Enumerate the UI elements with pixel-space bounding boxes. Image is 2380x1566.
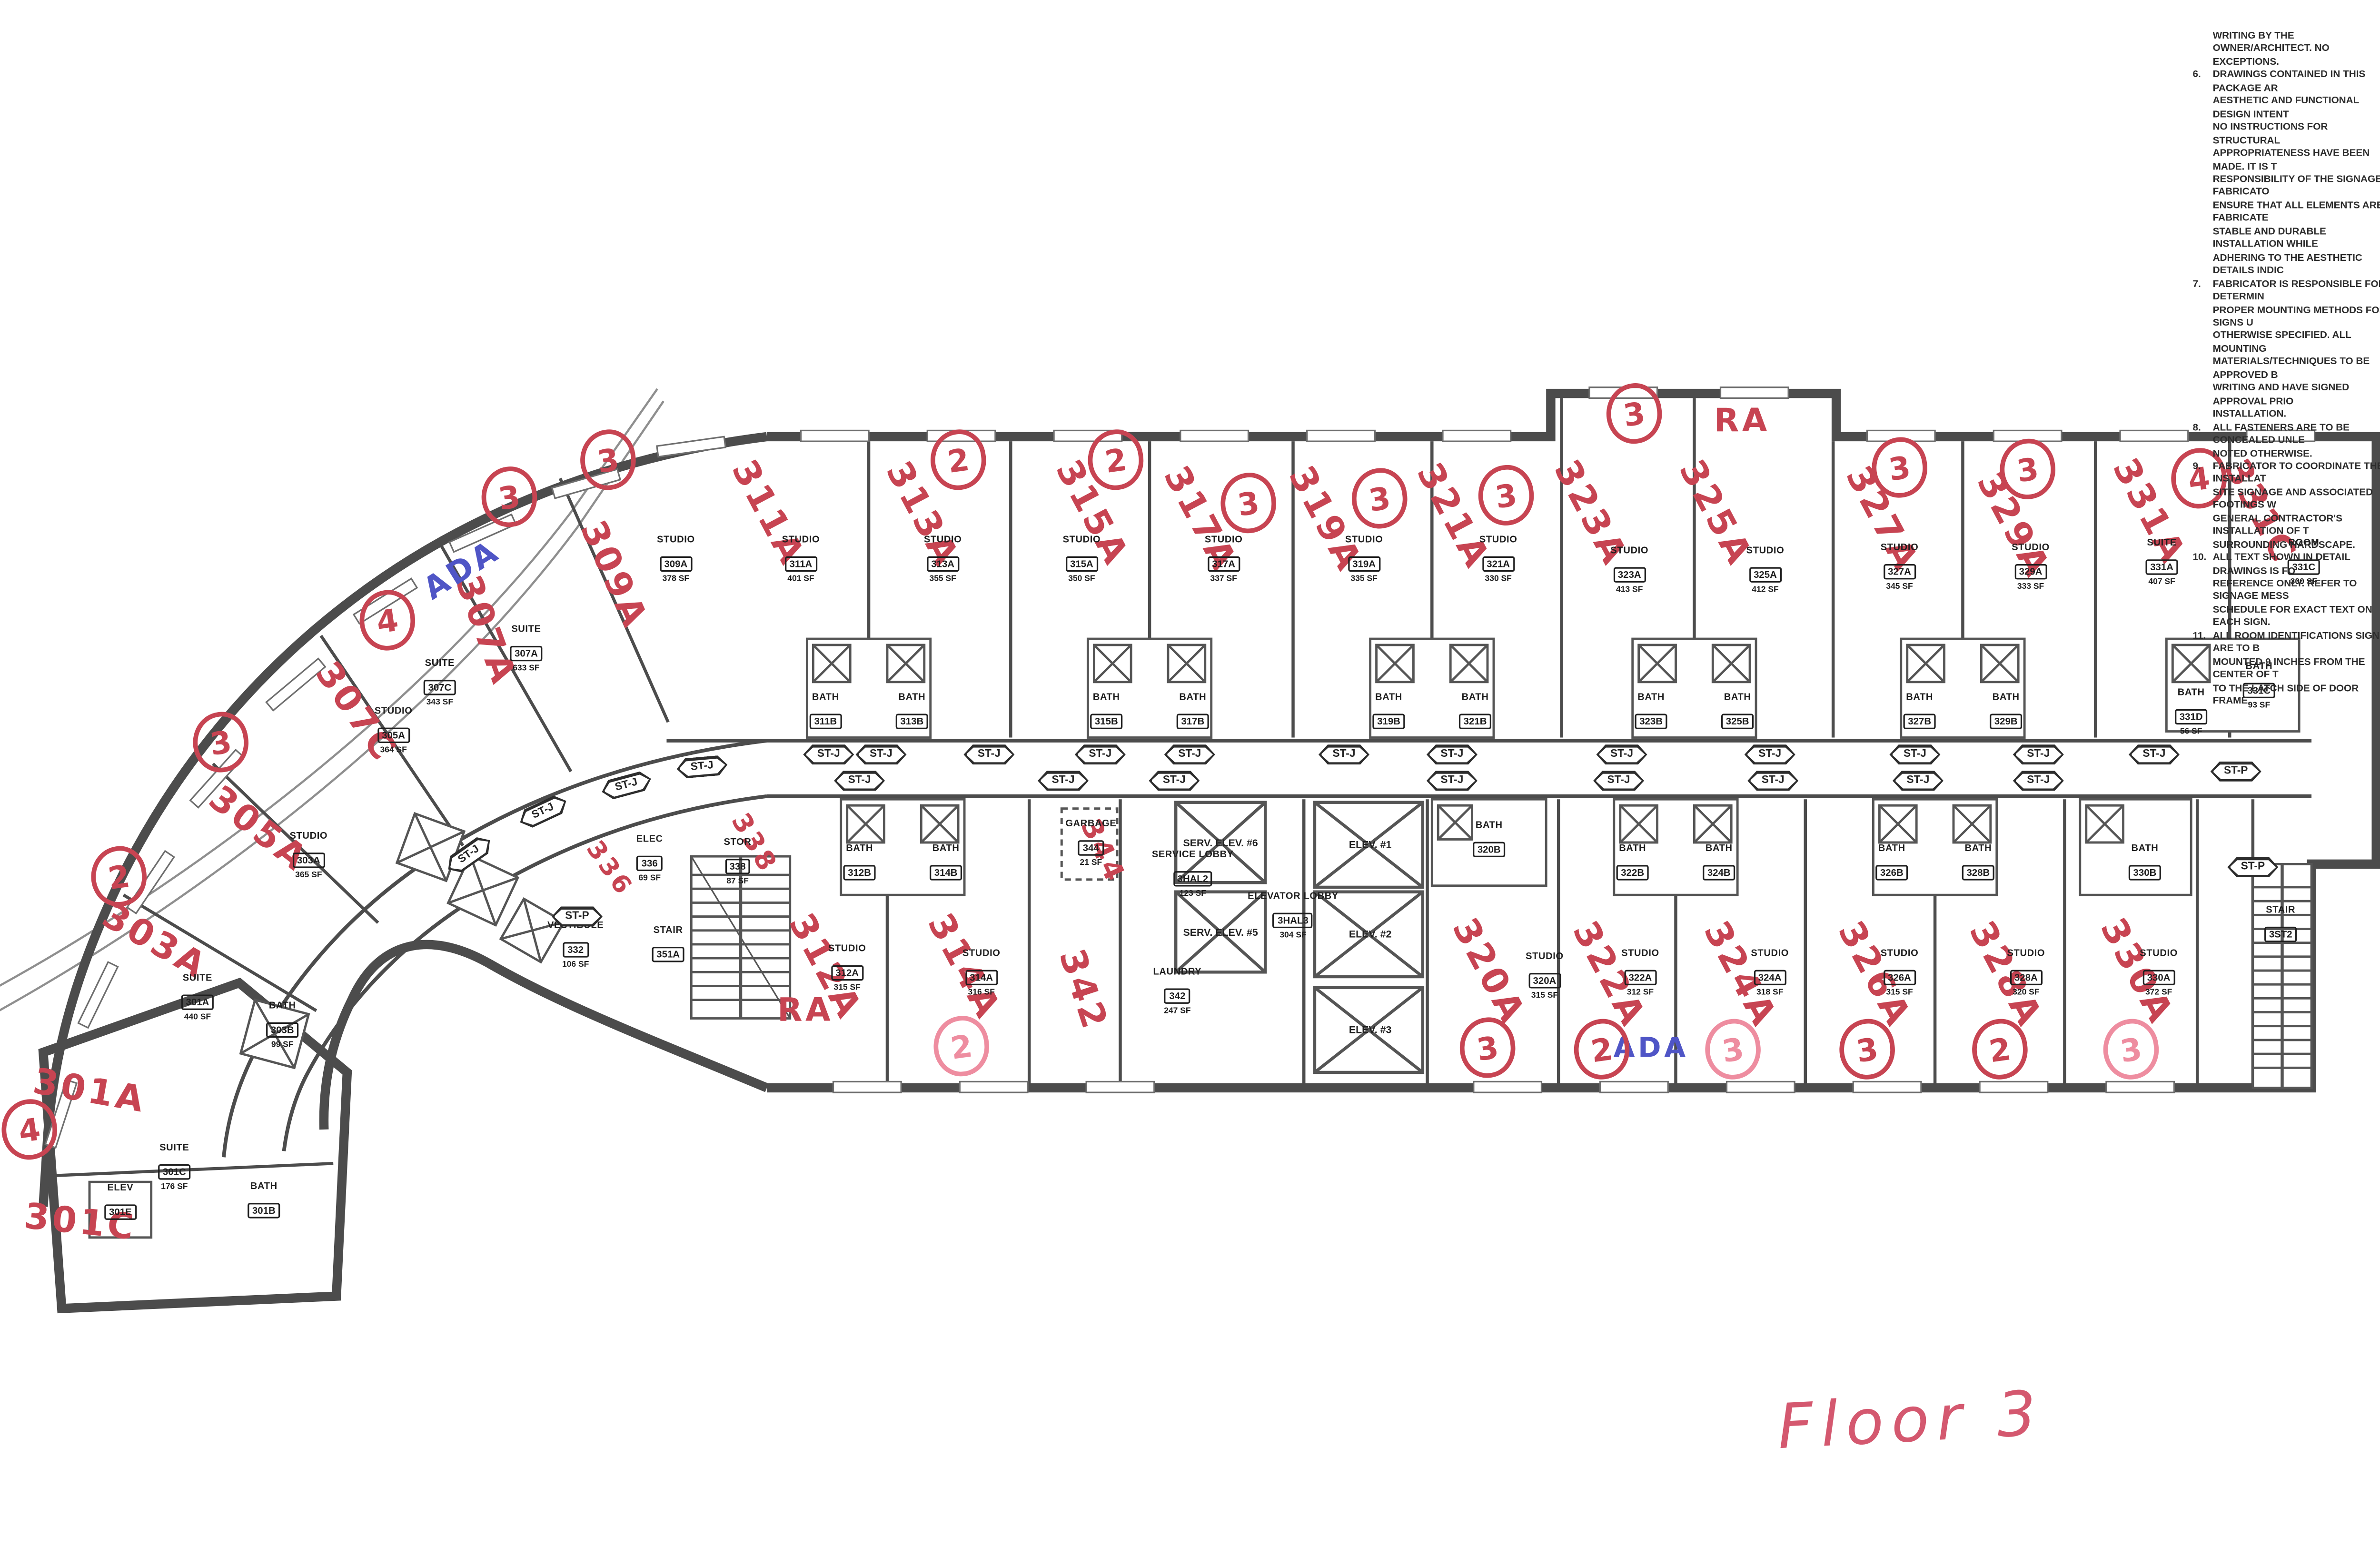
badge-text: ST-J — [1904, 749, 1926, 760]
room-tag: BATH303B99 SF — [266, 1002, 298, 1050]
room-tag: STUDIO326A315 SF — [1881, 950, 1919, 997]
room-area: 315 SF — [1526, 991, 1564, 1001]
keynote-badge: ST-P — [2211, 762, 2261, 782]
room-type: STUDIO — [1610, 547, 1648, 557]
room-type: STAIR — [652, 927, 684, 937]
room-number: 319A — [1348, 557, 1380, 573]
room-number: 307A — [510, 646, 542, 662]
room-number: 314A — [965, 971, 998, 986]
room-area: 372 SF — [2140, 988, 2178, 998]
room-number: 317B — [1177, 714, 1209, 730]
room-area: 365 SF — [290, 871, 328, 881]
room-tag: BATH323B — [1635, 694, 1667, 732]
badge-text: ST-J — [1163, 775, 1186, 786]
room-number: 313B — [896, 714, 928, 730]
room-tag: BATH313B — [896, 694, 928, 732]
room-tag: SUITE307A633 SF — [510, 626, 542, 674]
room-number: 307C — [424, 681, 456, 696]
room-number: 312B — [843, 866, 875, 882]
room-type: BATH — [1904, 694, 1936, 704]
room-tag: BATH330B — [2129, 845, 2161, 883]
room-number: 344 — [1078, 841, 1104, 857]
room-number: 322A — [1624, 971, 1656, 986]
room-tag: SERVICE LOBBY3HAL2123 SF — [1152, 851, 1234, 899]
room-area: 69 SF — [636, 874, 663, 883]
room-area: 316 SF — [962, 988, 1001, 998]
room-type: STUDIO — [1881, 544, 1919, 555]
room-number: 315B — [1090, 714, 1122, 730]
room-type: BATH — [1875, 845, 1908, 855]
badge-text: ST-J — [1178, 749, 1201, 760]
room-tag: STUDIO325A412 SF — [1746, 547, 1785, 595]
room-type: BATH — [1721, 694, 1754, 704]
room-tag: BATH328B — [1962, 845, 1994, 883]
note-number: 7. — [2192, 278, 2212, 422]
room-area: 413 SF — [1610, 585, 1648, 595]
badge-text: ST-J — [848, 775, 871, 786]
floor-title-handwritten: Floor 3 — [1776, 1378, 2046, 1463]
room-tag: SUITE331A407 SF — [2145, 539, 2178, 587]
room-type: STUDIO — [1621, 950, 1659, 960]
keynote-badge: ST-P — [2227, 857, 2278, 877]
room-area: 355 SF — [924, 575, 962, 584]
keynote-badge: ST-J — [1164, 744, 1215, 764]
keynote-badge: ST-J — [834, 771, 885, 791]
room-area: 312 SF — [1621, 988, 1659, 998]
room-type: ELEC — [636, 836, 663, 846]
room-number: 309A — [660, 557, 692, 573]
room-type: BATH — [810, 694, 842, 704]
badge-text: ST-J — [1089, 749, 1111, 760]
room-number: 323A — [1613, 568, 1646, 584]
room-tag: BATH324B — [1703, 845, 1735, 883]
room-type: SUITE — [158, 1144, 190, 1155]
room-number: 320B — [1473, 842, 1505, 858]
keynote-badge: ST-J — [1747, 771, 1798, 791]
room-tag: SUITE301C176 SF — [158, 1144, 190, 1192]
room-type: STUDIO — [962, 950, 1001, 960]
room-number: 3ST2 — [2264, 927, 2297, 943]
room-type: STUDIO — [290, 833, 328, 843]
room-type: LAUNDRY — [1153, 968, 1201, 979]
room-tag: STUDIO315A350 SF — [1063, 536, 1101, 584]
room-tag: BATH320B — [1473, 822, 1505, 860]
room-area: 318 SF — [1751, 988, 1789, 998]
room-type: SERVICE LOBBY — [1152, 851, 1234, 862]
room-area: 633 SF — [510, 664, 542, 674]
room-number: 324B — [1703, 866, 1735, 882]
badge-text: ST-J — [690, 761, 714, 773]
room-type: BATH — [1473, 822, 1505, 832]
room-number: 303B — [266, 1023, 298, 1039]
badge-text: ST-J — [2142, 749, 2165, 760]
badge-text: ST-J — [1440, 749, 1463, 760]
room-type: STUDIO — [1881, 950, 1919, 960]
room-number: 325A — [1749, 568, 1781, 584]
keynote-badge: ST-J — [963, 744, 1014, 764]
room-tag: STUDIO309A378 SF — [657, 536, 695, 584]
badge-text: ST-J — [1440, 775, 1463, 786]
room-type: BATH — [2129, 845, 2161, 855]
room-tag: STUDIO329A333 SF — [2012, 544, 2050, 592]
note-text: ALL FASTENERS ARE TO BE CONCEALED UNLE N… — [2213, 422, 2380, 461]
room-number: 311A — [785, 557, 817, 573]
room-area: 401 SF — [782, 575, 820, 584]
badge-text: ST-J — [870, 749, 892, 760]
room-type: STUDIO — [1751, 950, 1789, 960]
keynote-badge: ST-J — [1593, 771, 1644, 791]
room-tag: STUDIO327A345 SF — [1881, 544, 1919, 592]
room-tag: BATH312B — [843, 845, 875, 883]
scanned-floorplan-sheet: 311A313A315A317A319A321A323A325A327A329A… — [0, 0, 2380, 1566]
elevator-label: ELEV. #1 — [1349, 840, 1392, 851]
note-number: 6. — [2192, 70, 2212, 278]
room-tag: BATH301B — [248, 1183, 280, 1221]
room-tag: SUITE301A440 SF — [181, 974, 214, 1022]
keynote-badge: ST-J — [1075, 744, 1126, 764]
room-type: STUDIO — [1526, 953, 1564, 963]
note-text: FABRICATOR IS RESPONSIBLE FOR DETERMIN P… — [2213, 278, 2380, 422]
keynote-badge: ST-J — [1427, 771, 1478, 791]
room-area: 176 SF — [158, 1182, 190, 1192]
room-type: STUDIO — [1063, 536, 1101, 547]
note-item: 9.FABRICATOR TO COORDINATE THE INSTALLAT… — [2192, 461, 2380, 553]
note-item: 6.DRAWINGS CONTAINED IN THIS PACKAGE AR … — [2192, 70, 2380, 278]
room-area: 378 SF — [657, 575, 695, 584]
handwritten-label: RA — [1714, 405, 1770, 437]
room-type: STUDIO — [2007, 950, 2045, 960]
notes-intro: WRITING BY THE OWNER/ARCHITECT. NO EXCEP… — [2213, 31, 2380, 70]
keynote-badge: ST-J — [1745, 744, 1795, 764]
room-tag: BATH329B — [1990, 694, 2022, 732]
room-tag: STUDIO330A372 SF — [2140, 950, 2178, 997]
room-type: BATH — [1459, 694, 1491, 704]
room-tag: BATH326B — [1875, 845, 1908, 883]
room-type: BATH — [1372, 694, 1405, 704]
room-type: GARBAGE — [1065, 820, 1116, 831]
room-tag: STOR33887 SF — [724, 839, 752, 886]
room-tag: ELEC33669 SF — [636, 836, 663, 883]
note-text: ALL ROOM IDENTIFICATIONS SIGNS ARE TO B … — [2213, 631, 2380, 709]
room-tag: GARBAGE34421 SF — [1065, 820, 1116, 868]
room-area: 412 SF — [1746, 585, 1785, 595]
stair-right — [2253, 864, 2311, 1088]
badge-text: ST-J — [1906, 775, 1929, 786]
room-area: 315 SF — [828, 983, 866, 993]
keynote-badge: ST-J — [1038, 771, 1089, 791]
room-tag: STUDIO324A318 SF — [1751, 950, 1789, 997]
room-tag: STUDIO321A330 SF — [1479, 536, 1517, 584]
room-tag: BATH319B — [1372, 694, 1405, 732]
note-text: FABRICATOR TO COORDINATE THE INSTALLAT S… — [2213, 461, 2380, 553]
room-area: 315 SF — [1881, 988, 1919, 998]
room-tag: STUDIO313A355 SF — [924, 536, 962, 584]
room-area: 247 SF — [1153, 1007, 1201, 1016]
room-number: 329A — [2014, 565, 2047, 580]
keynote-badge: ST-J — [1889, 744, 1940, 764]
badge-text: ST-J — [1762, 775, 1785, 786]
badge-text: ST-J — [2027, 749, 2050, 760]
badge-text: ST-J — [2027, 775, 2050, 786]
room-area: 304 SF — [1248, 931, 1339, 941]
room-tag: STUDIO305A364 SF — [375, 707, 413, 755]
room-type: BATH — [1616, 845, 1649, 855]
note-item: 11.ALL ROOM IDENTIFICATIONS SIGNS ARE TO… — [2192, 631, 2380, 709]
room-tag: STUDIO312A315 SF — [828, 945, 866, 993]
room-number: 314B — [930, 866, 962, 882]
keynote-badge: ST-J — [803, 744, 854, 764]
badge-text: ST-J — [1052, 775, 1075, 786]
note-text: ALL TEXT SHOWN IN DETAIL DRAWINGS IS FO … — [2213, 553, 2380, 631]
room-number: 3HAL2 — [1173, 872, 1213, 888]
room-type: STUDIO — [2140, 950, 2178, 960]
note-number: 9. — [2192, 461, 2212, 553]
room-type: STUDIO — [1746, 547, 1785, 557]
room-tag: SUITE307C343 SF — [424, 660, 456, 707]
room-tag: LAUNDRY342247 SF — [1153, 968, 1201, 1016]
room-number: 351A — [652, 947, 684, 963]
note-number: 10. — [2192, 553, 2212, 631]
badge-text: ST-J — [1607, 775, 1630, 786]
room-number: 301E — [104, 1205, 136, 1221]
room-area: 337 SF — [1205, 575, 1243, 584]
room-number: 325B — [1721, 714, 1754, 730]
room-number: 305A — [377, 728, 409, 744]
room-tag: BATH327B — [1904, 694, 1936, 732]
room-area: 350 SF — [1063, 575, 1101, 584]
room-number: 324A — [1754, 971, 1786, 986]
room-tag: STUDIO303A365 SF — [290, 833, 328, 880]
room-number: 330A — [2142, 971, 2175, 986]
room-type: SUITE — [181, 974, 214, 985]
room-tag: ELEVATOR LOBBY3HAL3304 SF — [1248, 893, 1339, 941]
badge-text: ST-J — [978, 749, 1001, 760]
keynote-badge: ST-J — [1319, 744, 1369, 764]
room-type: BATH — [1090, 694, 1122, 704]
room-tag: ELEV301E — [104, 1184, 136, 1223]
room-area: 343 SF — [424, 698, 456, 708]
room-tag: BATH315B — [1090, 694, 1122, 732]
room-area: 333 SF — [2012, 582, 2050, 592]
note-item: 8.ALL FASTENERS ARE TO BE CONCEALED UNLE… — [2192, 422, 2380, 461]
room-type: BATH — [1990, 694, 2022, 704]
room-number: 321B — [1459, 714, 1491, 730]
room-type: STUDIO — [1479, 536, 1517, 547]
room-number: 338 — [725, 860, 751, 875]
badge-text: ST-P — [2224, 766, 2248, 777]
badge-text: ST-J — [817, 749, 840, 760]
room-tag: STAIR351A — [652, 927, 684, 965]
room-type: SUITE — [510, 626, 542, 636]
keynote-badge: ST-J — [2129, 744, 2180, 764]
room-type: STUDIO — [375, 707, 413, 718]
room-type: BATH — [896, 694, 928, 704]
keynote-badge: ST-J — [2013, 771, 2064, 791]
room-type: STUDIO — [1345, 536, 1383, 547]
room-type: BATH — [266, 1002, 298, 1013]
room-tag: STUDIO314A316 SF — [962, 950, 1001, 997]
room-number: 327B — [1904, 714, 1936, 730]
room-tag: VESTIBULE332106 SF — [547, 922, 604, 970]
room-tag: STUDIO319A335 SF — [1345, 536, 1383, 584]
room-number: 342 — [1165, 989, 1190, 1005]
room-type: STAIR — [2264, 907, 2297, 917]
room-number: 317A — [1208, 557, 1240, 573]
elevator-label: ELEV. #3 — [1349, 1025, 1392, 1036]
room-type: STUDIO — [924, 536, 962, 547]
keynote-badge: ST-J — [1149, 771, 1200, 791]
elevator-label: SERV. ELEV. #5 — [1183, 928, 1258, 939]
room-type: BATH — [1703, 845, 1735, 855]
room-area: 407 SF — [2145, 578, 2178, 587]
room-tag: BATH321B — [1459, 694, 1491, 732]
room-number: 301C — [158, 1165, 190, 1180]
room-number: 320A — [1528, 973, 1561, 989]
badge-text: ST-P — [2241, 862, 2265, 872]
room-number: 311B — [810, 714, 842, 730]
room-number: 312A — [831, 966, 863, 981]
room-area: 99 SF — [266, 1041, 298, 1050]
room-type: STUDIO — [2012, 544, 2050, 555]
room-number: 328B — [1962, 866, 1994, 882]
room-type: BATH — [1177, 694, 1209, 704]
keynote-badge: ST-J — [856, 744, 907, 764]
room-number: 303A — [292, 853, 325, 869]
room-number: 3HAL3 — [1273, 913, 1313, 929]
room-type: BATH — [248, 1183, 280, 1193]
room-tag: BATH322B — [1616, 845, 1649, 883]
room-number: 326B — [1875, 866, 1908, 882]
room-number: 328A — [2010, 971, 2042, 986]
room-number: 332 — [563, 943, 588, 959]
room-area: 330 SF — [1479, 575, 1517, 584]
room-tag: STUDIO320A315 SF — [1526, 953, 1564, 1001]
room-area: 21 SF — [1065, 859, 1116, 868]
room-tag: STUDIO317A337 SF — [1205, 536, 1243, 584]
room-type: BATH — [1635, 694, 1667, 704]
room-type: STUDIO — [828, 945, 866, 956]
room-area: 440 SF — [181, 1013, 214, 1022]
keynote-badge: ST-J — [1893, 771, 1944, 791]
general-notes: WRITING BY THE OWNER/ARCHITECT. NO EXCEP… — [2192, 31, 2380, 709]
room-number: 321A — [1482, 557, 1515, 573]
room-number: 319B — [1372, 714, 1405, 730]
room-tag: BATH314B — [930, 845, 962, 883]
room-area: 56 SF — [2175, 727, 2207, 737]
badge-text: ST-J — [1758, 749, 1781, 760]
note-number: 11. — [2192, 631, 2212, 709]
room-number: 301A — [181, 995, 214, 1011]
room-number: 331A — [2145, 560, 2178, 576]
keynote-badge: ST-J — [2013, 744, 2064, 764]
room-type: BATH — [843, 845, 875, 855]
room-number: 330B — [2129, 866, 2161, 882]
keynote-badge: ST-J — [1427, 744, 1478, 764]
badge-text: ST-P — [565, 911, 589, 922]
room-number: 336 — [637, 856, 663, 872]
room-tag: STUDIO322A312 SF — [1621, 950, 1659, 997]
room-number: 315A — [1065, 557, 1098, 573]
room-type: STUDIO — [1205, 536, 1243, 547]
badge-text: ST-J — [1610, 749, 1633, 760]
elevator-label: ELEV. #2 — [1349, 930, 1392, 941]
note-item: 7.FABRICATOR IS RESPONSIBLE FOR DETERMIN… — [2192, 278, 2380, 422]
room-type: ELEVATOR LOBBY — [1248, 893, 1339, 903]
room-type: STUDIO — [657, 536, 695, 547]
room-tag: BATH311B — [810, 694, 842, 732]
room-number: 331D — [2175, 710, 2207, 725]
badge-text: ST-J — [1333, 749, 1356, 760]
room-type: BATH — [930, 845, 962, 855]
room-type: STUDIO — [782, 536, 820, 547]
note-text: DRAWINGS CONTAINED IN THIS PACKAGE AR AE… — [2213, 70, 2380, 278]
room-area: 335 SF — [1345, 575, 1383, 584]
room-area: 364 SF — [375, 746, 413, 755]
room-type: ELEV — [104, 1184, 136, 1195]
room-number: 322B — [1616, 866, 1649, 882]
room-tag: STUDIO328A320 SF — [2007, 950, 2045, 997]
room-number: 329B — [1990, 714, 2022, 730]
room-tag: BATH325B — [1721, 694, 1754, 732]
room-area: 345 SF — [1881, 582, 1919, 592]
room-tag: STAIR3ST2 — [2264, 907, 2297, 945]
room-area: 320 SF — [2007, 988, 2045, 998]
keynote-badge: ST-J — [1597, 744, 1647, 764]
room-tag: BATH317B — [1177, 694, 1209, 732]
room-type: SUITE — [2145, 539, 2178, 550]
room-type: STOR — [724, 839, 752, 849]
room-number: 326A — [1883, 971, 1915, 986]
room-number: 327A — [1883, 565, 1915, 580]
room-area: 87 SF — [724, 877, 752, 887]
keynote-badge: ST-P — [552, 906, 603, 926]
room-number: 323B — [1635, 714, 1667, 730]
room-number: 313A — [927, 557, 959, 573]
handwritten-label: RA — [777, 994, 833, 1027]
note-item: 10.ALL TEXT SHOWN IN DETAIL DRAWINGS IS … — [2192, 553, 2380, 631]
room-type: SUITE — [424, 660, 456, 670]
elevator-label: SERV. ELEV. #6 — [1183, 839, 1258, 850]
room-tag: STUDIO311A401 SF — [782, 536, 820, 584]
room-number: 301B — [248, 1204, 280, 1219]
note-number: 8. — [2192, 422, 2212, 461]
room-area: 123 SF — [1152, 890, 1234, 899]
room-area: 106 SF — [547, 961, 604, 970]
room-tag: STUDIO323A413 SF — [1610, 547, 1648, 595]
room-type: BATH — [1962, 845, 1994, 855]
